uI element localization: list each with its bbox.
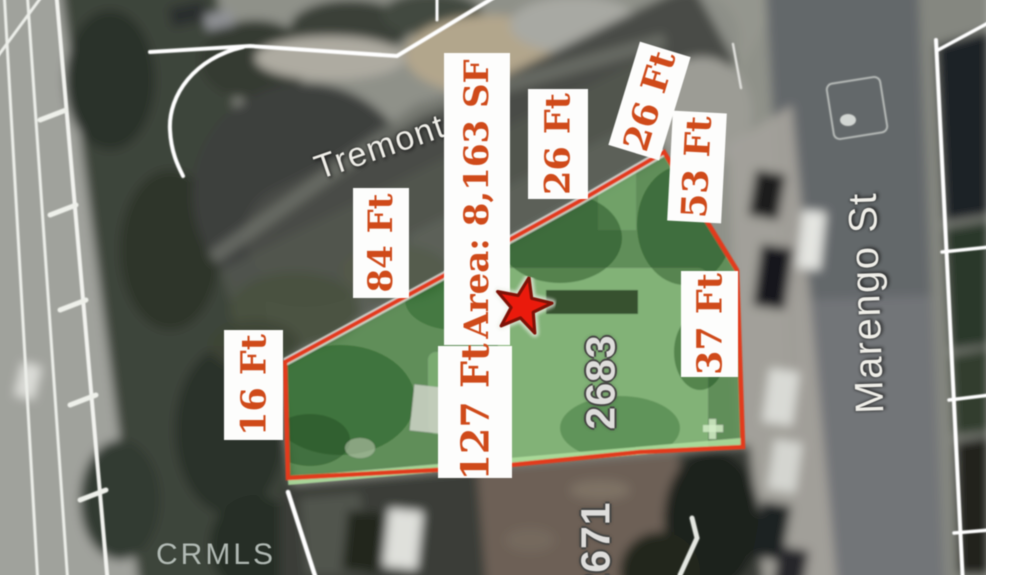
measurement-16ft: 16 Ft xyxy=(224,330,283,440)
map-labels: Tremont St Marengo St 84 Ft Area: 8,163 … xyxy=(0,0,1024,575)
measurement-127ft: 127 Ft xyxy=(438,346,512,478)
measurement-26ft-mid: 26 Ft xyxy=(528,89,588,199)
star-icon xyxy=(485,270,561,346)
crmls-watermark: CRMLS xyxy=(156,538,276,572)
aerial-parcel-map: Tremont St Marengo St 84 Ft Area: 8,163 … xyxy=(0,0,1024,575)
marengo-street-text: Marengo St xyxy=(841,191,894,414)
measurement-37ft: 37 Ft xyxy=(681,271,738,377)
location-star-marker xyxy=(484,270,561,351)
measurement-84ft: 84 Ft xyxy=(353,188,409,298)
measurement-53ft: 53 Ft xyxy=(667,111,727,224)
